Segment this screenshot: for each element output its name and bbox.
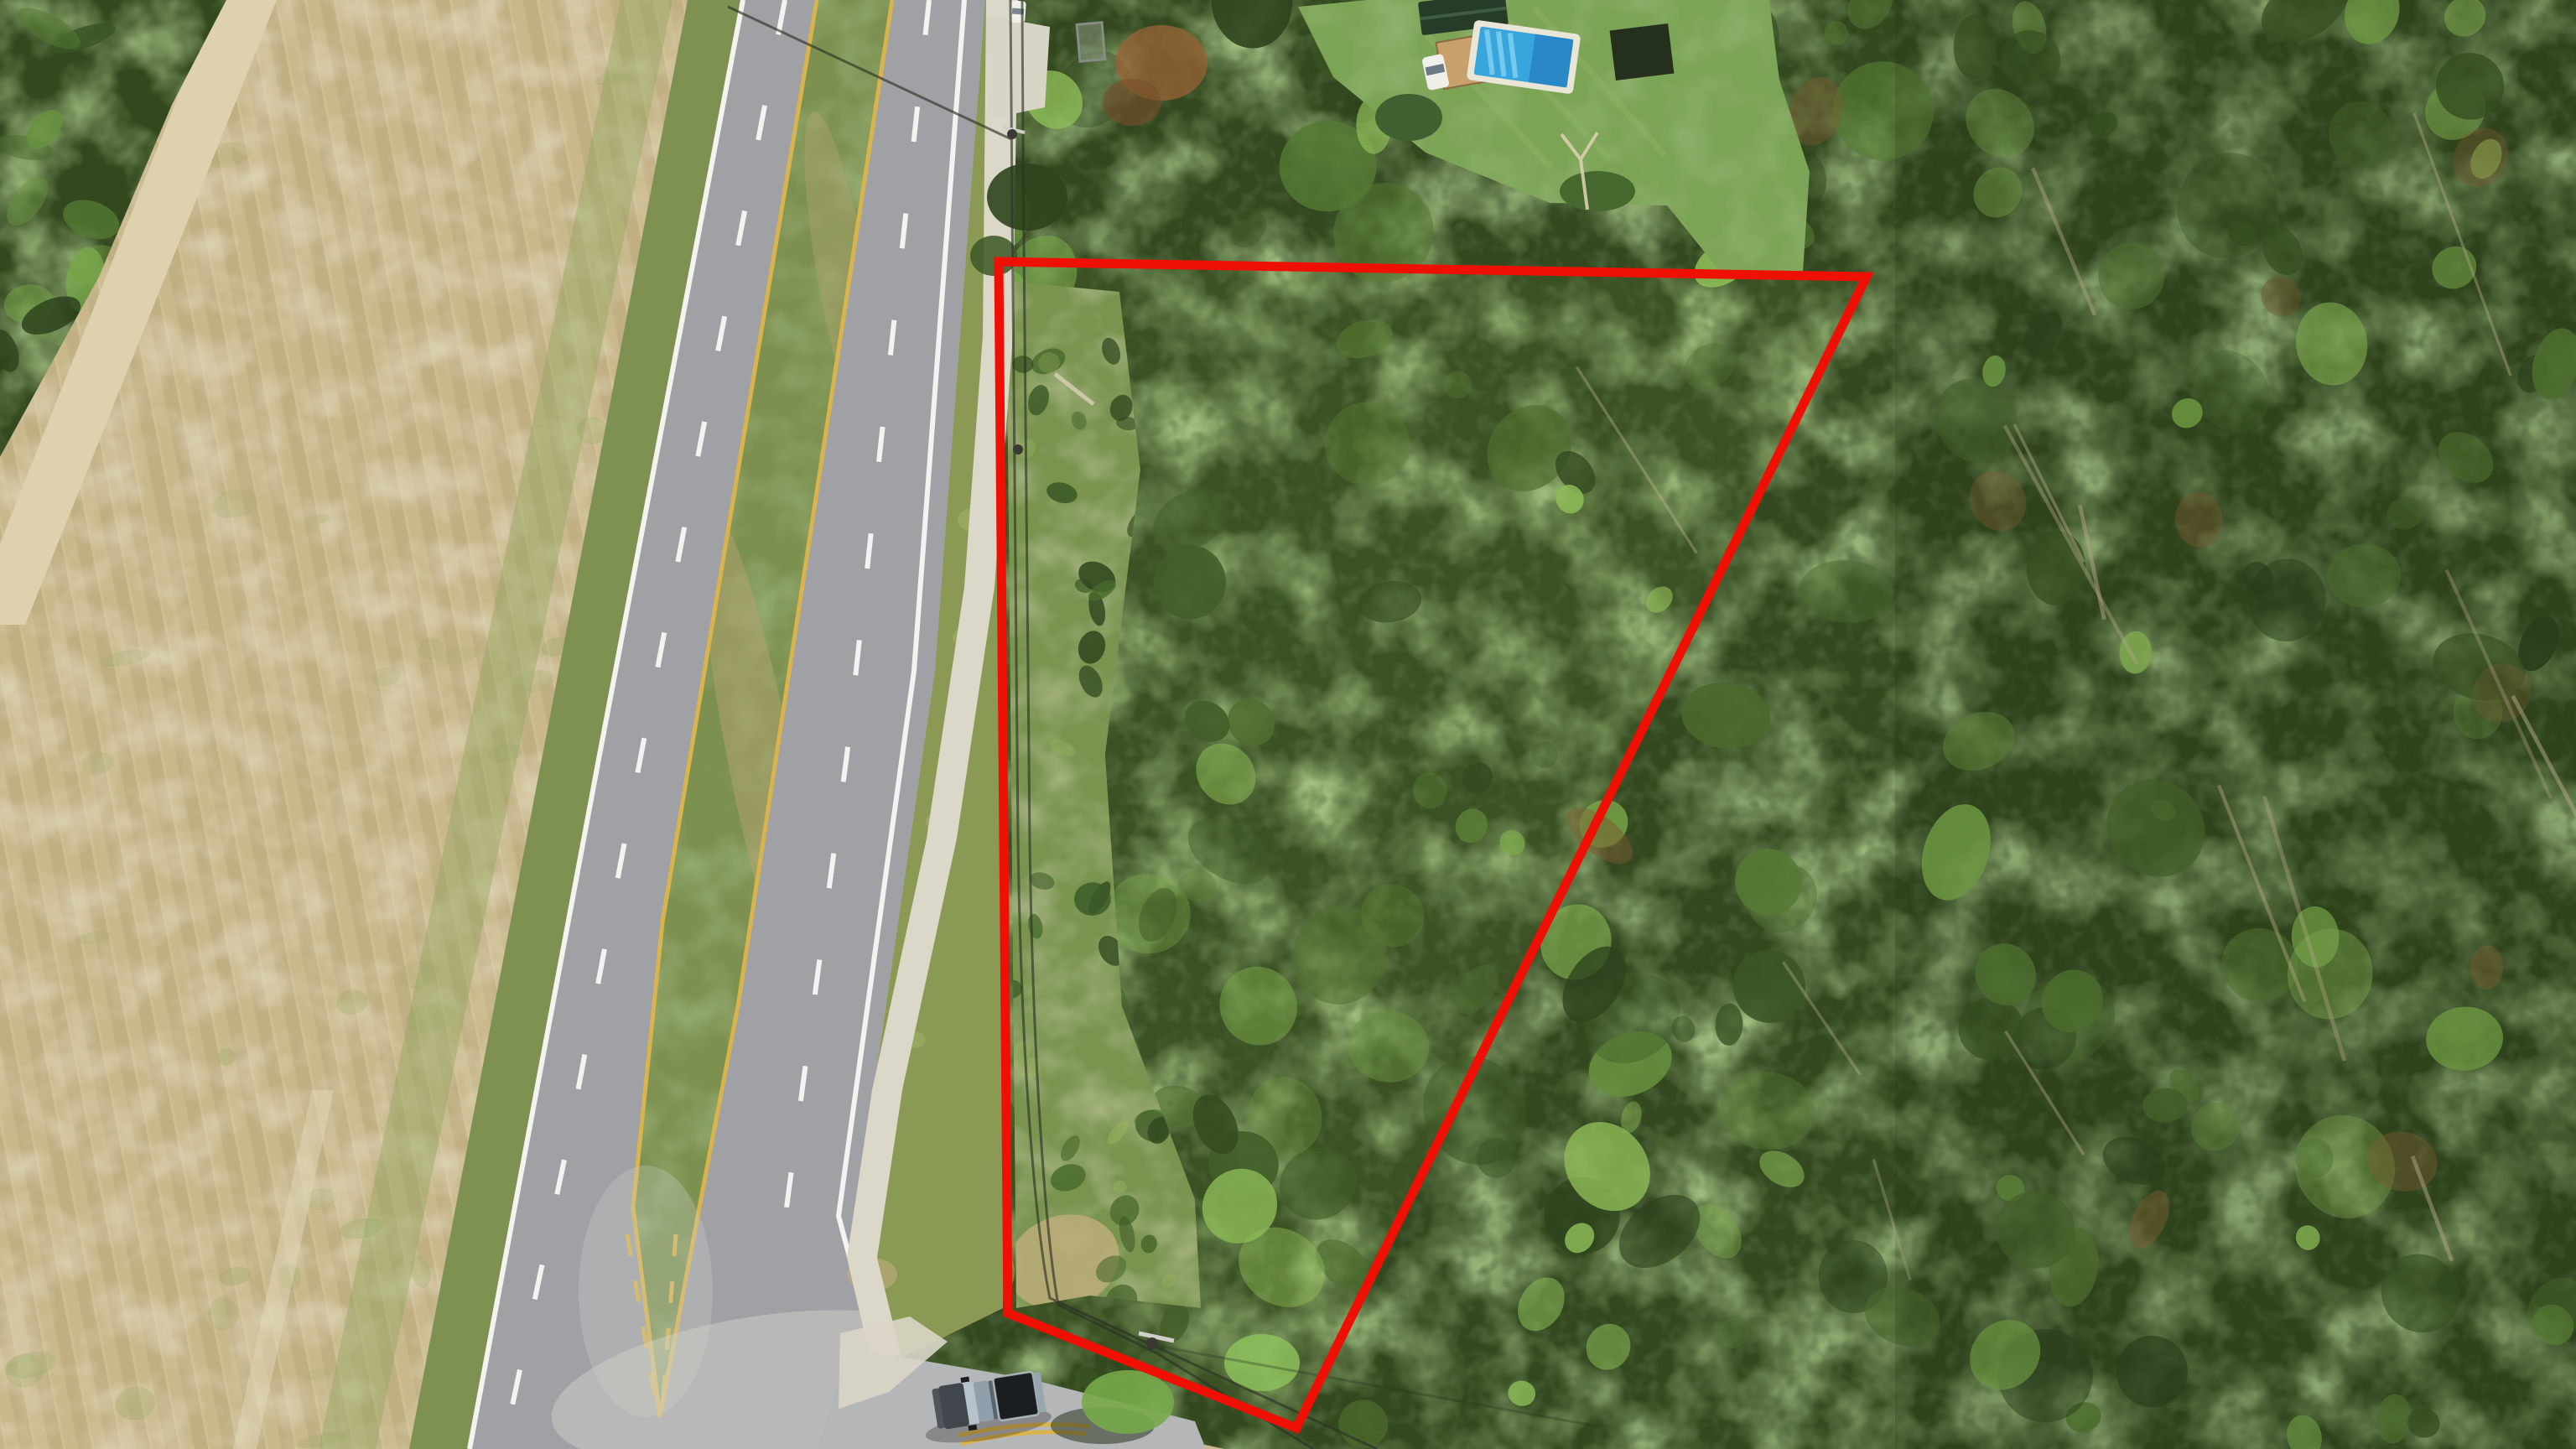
hedge: [1375, 94, 1442, 141]
driveway-apron: [986, 15, 1050, 119]
dark-shed: [1610, 23, 1675, 80]
utility-pole: [1007, 129, 1017, 139]
rust-tree-crown: [1103, 79, 1161, 126]
overhanging-canopy: [987, 164, 1067, 231]
overhanging-canopy: [970, 236, 1017, 276]
dark-shed-roof: [1610, 23, 1675, 80]
hedge: [1560, 171, 1635, 211]
aerial-photo: [0, 0, 2576, 1449]
pavement-glare-2: [579, 1166, 713, 1417]
canopy-blob: [1012, 356, 1033, 373]
sign-frame: [1077, 23, 1105, 61]
aerial-photo-stage: [0, 0, 2576, 1449]
far-forest-tint: [1895, 0, 2576, 1449]
sign-board: [1077, 23, 1105, 61]
white-car-driveway: [1010, 0, 1026, 23]
truck-bed-cover: [993, 1372, 1040, 1421]
palm-canopy: [1082, 1370, 1174, 1434]
pool-deep-end: [1529, 34, 1574, 88]
utility-pole: [1146, 1337, 1158, 1349]
utility-pole: [1013, 444, 1023, 454]
